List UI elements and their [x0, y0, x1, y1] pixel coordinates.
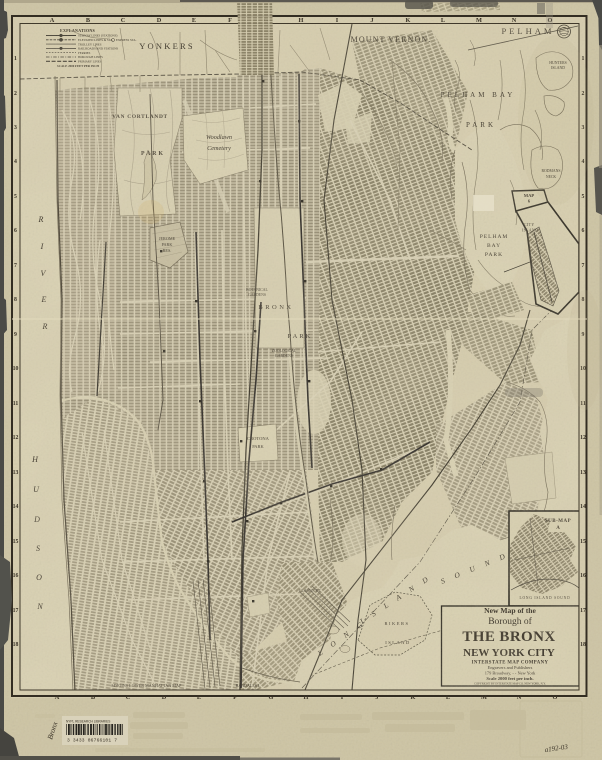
svg-text:M: M: [476, 17, 482, 24]
svg-text:M: M: [481, 694, 487, 701]
svg-text:J: J: [375, 694, 378, 701]
svg-text:17: 17: [580, 608, 586, 614]
svg-text:D: D: [162, 694, 167, 701]
svg-text:H: H: [304, 694, 309, 701]
svg-text:11: 11: [13, 401, 19, 407]
svg-text:C: C: [121, 17, 126, 24]
svg-text:L: L: [446, 694, 450, 701]
svg-text:6: 6: [14, 228, 17, 234]
svg-text:1: 1: [14, 56, 17, 62]
svg-text:D: D: [157, 17, 162, 24]
svg-text:18: 18: [580, 642, 586, 648]
svg-text:H: H: [299, 17, 304, 24]
svg-text:6: 6: [582, 228, 585, 234]
svg-text:F: F: [228, 17, 232, 24]
svg-text:12: 12: [580, 435, 586, 441]
svg-text:C: C: [126, 694, 131, 701]
svg-text:N: N: [517, 694, 522, 701]
svg-text:7: 7: [582, 263, 585, 269]
svg-text:F: F: [233, 694, 237, 701]
svg-text:N: N: [512, 17, 517, 24]
svg-text:14: 14: [13, 504, 19, 510]
svg-text:10: 10: [13, 366, 19, 372]
svg-text:3: 3: [14, 125, 17, 131]
svg-text:5: 5: [582, 194, 585, 200]
svg-text:E: E: [197, 694, 201, 701]
svg-text:16: 16: [580, 573, 586, 579]
svg-text:16: 16: [13, 573, 19, 579]
svg-text:A: A: [50, 17, 55, 24]
svg-text:4: 4: [14, 159, 17, 165]
svg-text:5: 5: [14, 194, 17, 200]
svg-text:14: 14: [580, 504, 586, 510]
svg-text:13: 13: [13, 470, 19, 476]
svg-text:3 3433 06766101 7: 3 3433 06766101 7: [67, 738, 117, 744]
svg-text:K: K: [411, 694, 416, 701]
svg-text:7: 7: [14, 263, 17, 269]
svg-text:13: 13: [580, 470, 586, 476]
svg-text:15: 15: [13, 539, 19, 545]
svg-text:17: 17: [13, 608, 19, 614]
svg-text:18: 18: [13, 642, 19, 648]
svg-text:G: G: [269, 694, 274, 701]
svg-text:9: 9: [14, 332, 17, 338]
svg-text:8: 8: [14, 297, 17, 303]
svg-text:K: K: [406, 17, 411, 24]
svg-text:12: 12: [13, 435, 19, 441]
svg-text:E: E: [192, 17, 196, 24]
svg-text:A: A: [55, 694, 60, 701]
svg-text:J: J: [370, 17, 373, 24]
svg-text:O: O: [553, 694, 558, 701]
svg-text:15: 15: [580, 539, 586, 545]
svg-text:2: 2: [14, 91, 17, 97]
svg-text:NYPL RESEARCH LIBRARIES: NYPL RESEARCH LIBRARIES: [66, 720, 110, 724]
svg-text:L: L: [441, 17, 445, 24]
